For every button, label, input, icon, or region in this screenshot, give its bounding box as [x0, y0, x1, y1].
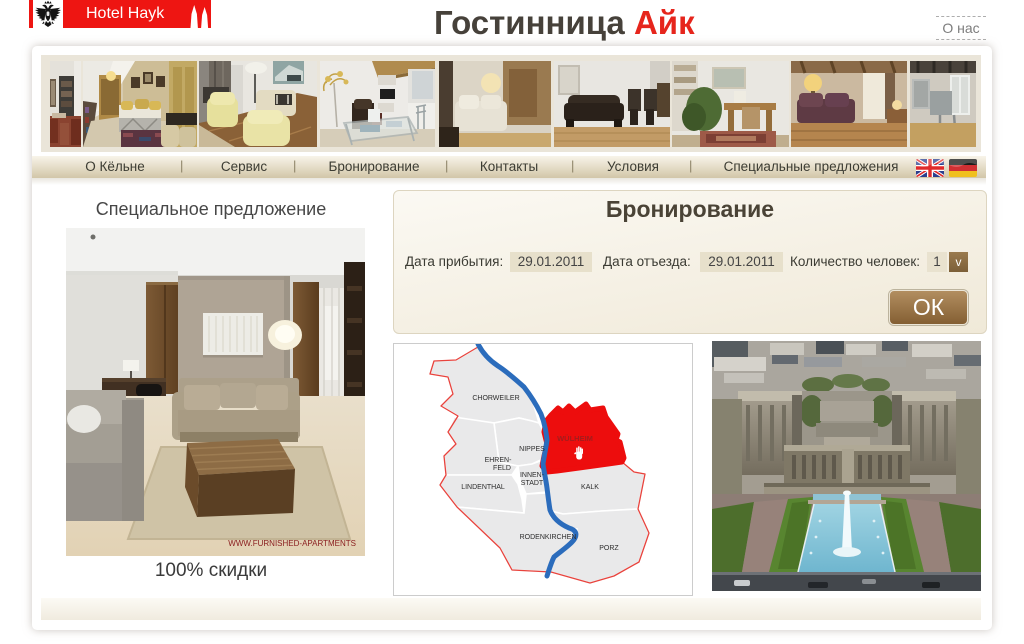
svg-text:FELD: FELD [493, 465, 511, 472]
svg-text:EHREN-: EHREN- [485, 457, 513, 464]
svg-text:KALK: KALK [581, 484, 599, 491]
svg-text:STADT: STADT [521, 480, 544, 487]
svg-text:WÜLHEIM: WÜLHEIM [557, 434, 593, 443]
svg-text:RODENKIRCHEN: RODENKIRCHEN [520, 534, 577, 541]
svg-text:WWW.FURNISHED-APARTMENTS: WWW.FURNISHED-APARTMENTS [228, 539, 356, 548]
svg-text:INNEN-: INNEN- [520, 472, 545, 479]
svg-text:CHORWEILER: CHORWEILER [472, 395, 519, 402]
svg-text:PORZ: PORZ [599, 545, 619, 552]
svg-text:LINDENTHAL: LINDENTHAL [461, 484, 505, 491]
svg-text:NIPPES: NIPPES [519, 446, 545, 453]
